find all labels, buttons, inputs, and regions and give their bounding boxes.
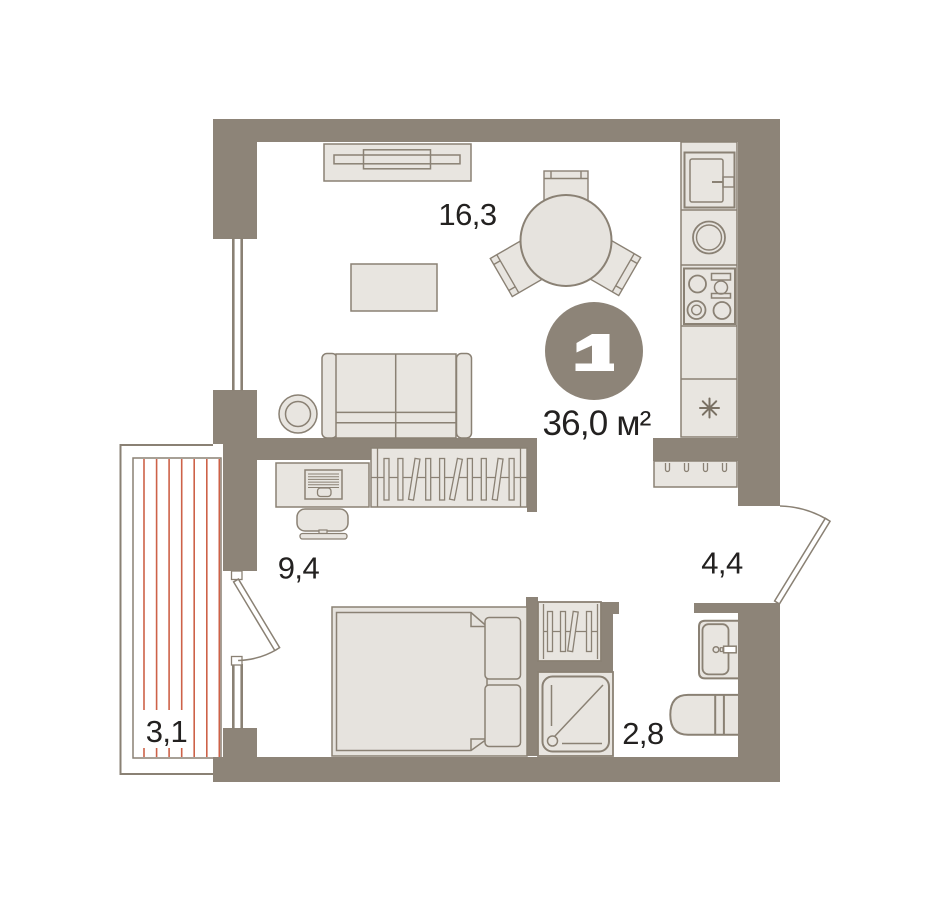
- svg-text:16,3: 16,3: [438, 197, 496, 232]
- svg-text:2,8: 2,8: [622, 716, 664, 751]
- svg-text:9,4: 9,4: [278, 551, 320, 586]
- svg-text:3,1: 3,1: [146, 714, 188, 749]
- svg-text:4,4: 4,4: [701, 546, 743, 581]
- svg-text:36,0 м²: 36,0 м²: [543, 404, 651, 443]
